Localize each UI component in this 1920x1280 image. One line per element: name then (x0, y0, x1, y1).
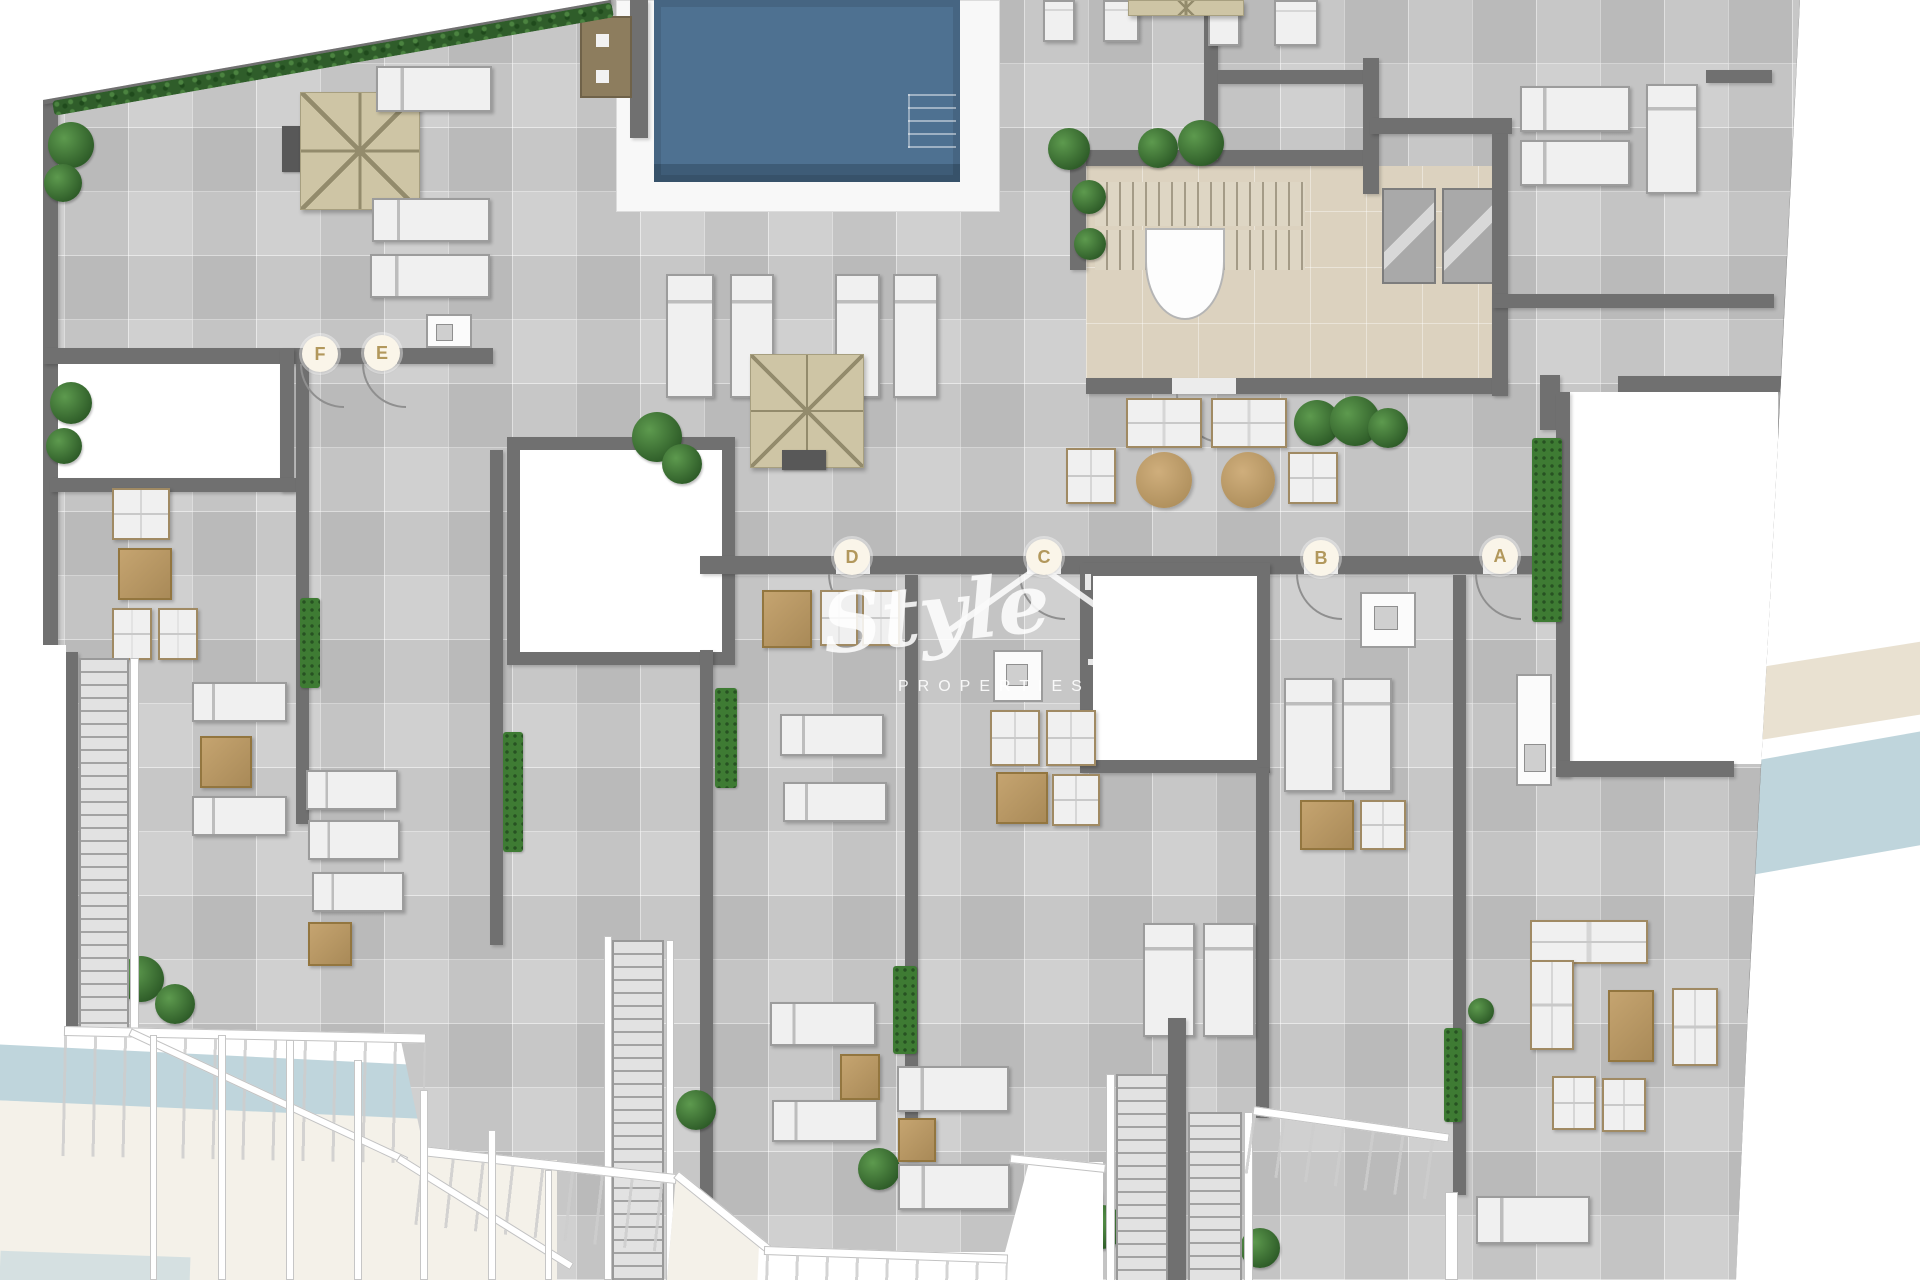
kitchenette (993, 650, 1043, 702)
round-table (1136, 452, 1192, 508)
sofa (990, 710, 1040, 766)
sun-lounger (192, 796, 287, 836)
sun-lounger (1274, 0, 1318, 46)
wall-divider-EF (296, 364, 309, 824)
door-opening (1304, 556, 1338, 574)
wall-divider-D (700, 650, 713, 1280)
bush (662, 444, 702, 484)
door-opening (836, 556, 870, 574)
armchair (1672, 988, 1718, 1066)
swimming-pool (654, 0, 960, 182)
sun-lounger (1342, 678, 1392, 792)
door-opening (367, 348, 397, 364)
railing (130, 658, 139, 1032)
railing (1106, 1074, 1115, 1280)
wall (1370, 118, 1512, 134)
sun-lounger (306, 770, 398, 810)
door-opening (1172, 378, 1236, 394)
sun-lounger (897, 1066, 1009, 1112)
planter (300, 598, 320, 688)
sofa (1530, 960, 1574, 1050)
sun-lounger (1043, 0, 1075, 42)
planter (893, 966, 917, 1054)
railing-posts (765, 1254, 1008, 1280)
bush (1072, 180, 1106, 214)
round-table (1221, 452, 1275, 508)
side-table (762, 590, 812, 648)
planter (1532, 438, 1562, 622)
sun-lounger (1646, 84, 1698, 194)
sofa (1126, 398, 1202, 448)
bush (46, 428, 82, 464)
railing (604, 936, 612, 1280)
side-table (840, 1054, 880, 1100)
bush (48, 122, 94, 168)
staircase (1116, 1074, 1168, 1280)
parasol (1128, 0, 1244, 16)
door-opening (305, 348, 335, 364)
railing (1244, 1112, 1253, 1280)
planter (715, 688, 737, 788)
side-table (898, 1118, 936, 1162)
wall (1168, 1018, 1186, 1280)
armchair (112, 488, 170, 540)
door-arc (1296, 574, 1342, 620)
bush (858, 1148, 900, 1190)
wall-divider-CB (1256, 768, 1269, 1118)
sun-lounger (312, 872, 404, 912)
sun-lounger (1476, 1196, 1590, 1244)
sun-lounger (772, 1100, 878, 1142)
side-table (996, 772, 1048, 824)
sun-lounger (898, 1164, 1010, 1210)
wall (280, 348, 294, 492)
side-table (1608, 990, 1654, 1062)
wall (1492, 294, 1774, 308)
armchair (1288, 452, 1338, 504)
elevator (1382, 188, 1436, 284)
armchair (112, 608, 152, 660)
armchair (1552, 1076, 1596, 1130)
sun-lounger (1203, 923, 1255, 1037)
bush (1178, 120, 1224, 166)
kitchenette (426, 314, 472, 348)
wall (1556, 761, 1734, 777)
parasol-base (782, 450, 826, 470)
wall (65, 652, 78, 1034)
armchair (1052, 774, 1100, 826)
staircase (612, 940, 664, 1280)
sun-lounger (1520, 140, 1630, 186)
wall (490, 450, 503, 945)
outer-wall-right-low (1736, 1008, 1760, 1280)
sofa (1211, 398, 1287, 448)
sun-lounger (770, 1002, 876, 1046)
outer-wall-right-top (1769, 0, 1813, 604)
planter (1444, 1028, 1462, 1122)
sun-lounger (666, 274, 714, 398)
parasol-base (282, 126, 302, 172)
bush (1048, 128, 1090, 170)
bush (1050, 1172, 1102, 1224)
floor-plan-canvas: Style PROPERTIES FEDCBA (0, 0, 1920, 1280)
sun-lounger (783, 782, 887, 822)
wall (630, 0, 648, 138)
sun-lounger (780, 714, 884, 756)
bush (676, 1090, 716, 1130)
armchair (158, 608, 198, 660)
side-table (308, 922, 352, 966)
wall (1492, 134, 1508, 396)
bush (1368, 408, 1408, 448)
sun-lounger (372, 198, 490, 242)
side-table (1300, 800, 1354, 850)
armchair (1066, 448, 1116, 504)
door-opening (1027, 556, 1061, 574)
wall (1706, 70, 1772, 83)
door-arc (1019, 574, 1065, 620)
elevator (1442, 188, 1498, 284)
sun-lounger (370, 254, 490, 298)
bush (50, 382, 92, 424)
side-table (200, 736, 252, 788)
outdoor-shower (580, 16, 632, 98)
door-arc (1475, 574, 1521, 620)
staircase (1188, 1112, 1242, 1280)
staircase (1095, 182, 1305, 226)
sun-lounger (308, 820, 400, 860)
side-table (118, 548, 172, 600)
armchair (1360, 800, 1406, 850)
door-opening (1483, 556, 1517, 574)
room-void (1080, 563, 1270, 773)
wall (1218, 70, 1370, 84)
sun-lounger (1284, 678, 1334, 792)
armchair (820, 590, 858, 646)
sofa (1046, 710, 1096, 766)
wall (1618, 376, 1790, 392)
room-void (1568, 392, 1778, 764)
wall (50, 478, 296, 492)
bush (155, 984, 195, 1024)
kitchenette (1516, 674, 1552, 786)
armchair (1602, 1078, 1646, 1132)
room-void (58, 364, 282, 482)
wall (1086, 378, 1506, 394)
bush (1074, 228, 1106, 260)
sun-lounger (1520, 86, 1630, 132)
sun-lounger (893, 274, 938, 398)
kitchenette (1360, 592, 1416, 648)
bush (1138, 128, 1178, 168)
pool-steps (908, 94, 956, 148)
door-arc (362, 364, 406, 408)
bush (1468, 998, 1494, 1024)
planter (503, 732, 523, 852)
armchair (862, 590, 900, 646)
bush (44, 164, 82, 202)
wall-units-FE (43, 348, 493, 364)
staircase (79, 658, 129, 1032)
sun-lounger (376, 66, 492, 112)
sofa (1530, 920, 1648, 964)
room-void (507, 437, 735, 665)
sun-lounger (192, 682, 287, 722)
